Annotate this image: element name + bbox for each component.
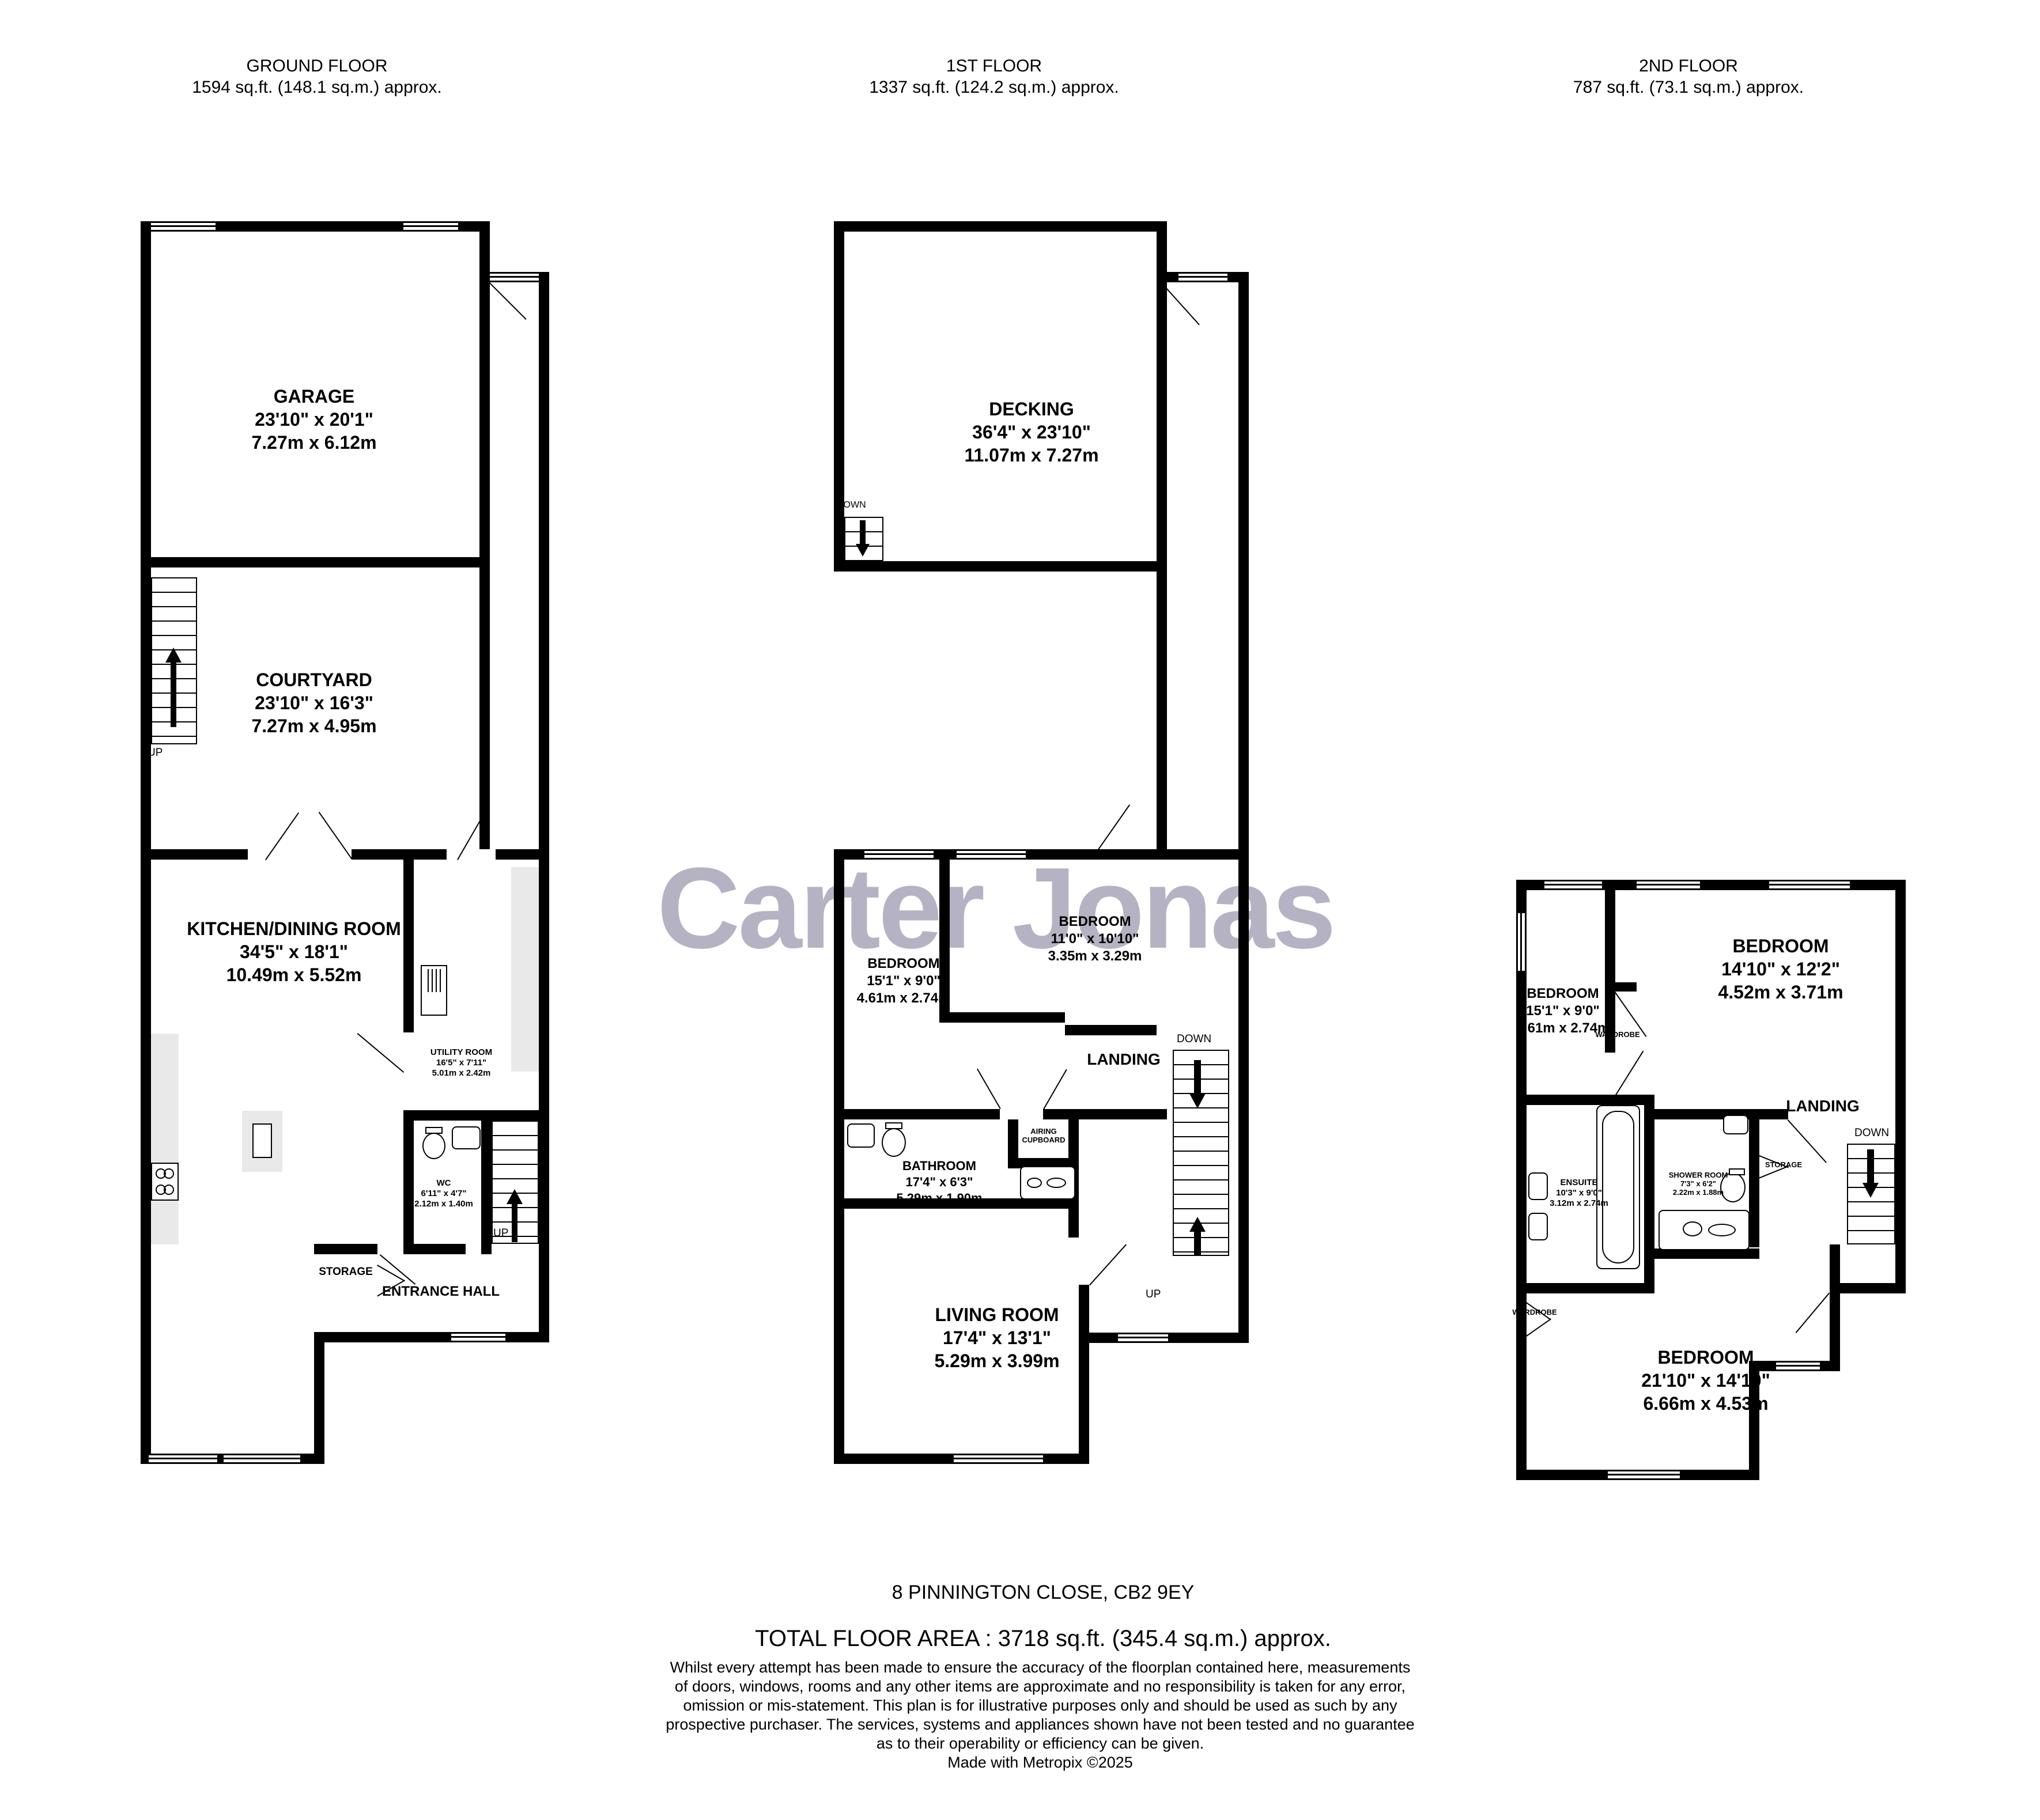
up-arrow-icon	[507, 1189, 523, 1204]
room-name: WARDROBE	[1503, 1308, 1566, 1316]
room-name: BEDROOM	[1494, 985, 1632, 1002]
wall	[403, 1110, 549, 1121]
wall	[1238, 272, 1249, 1343]
floor-title: 1ST FLOOR	[821, 55, 1167, 77]
floor-area: 1594 sq.ft. (148.1 sq.m.) approx.	[144, 77, 490, 98]
wall	[1840, 1283, 1906, 1293]
room-dims-imperial: 11'0" x 10'10"	[1014, 930, 1176, 948]
room-dims-imperial: 14'10" x 12'2"	[1683, 958, 1879, 981]
room-dims-imperial: 10'3" x 9'0"	[1530, 1188, 1628, 1198]
down-arrow-icon	[860, 520, 866, 546]
room-name: ENTRANCE HALL	[346, 1284, 536, 1300]
room-dims-metric: 7.27m x 4.95m	[199, 714, 429, 737]
total-floor-area: TOTAL FLOOR AREA : 3718 sq.ft. (345.4 sq…	[617, 1626, 1469, 1652]
room-label-bedroom: BEDROOM 14'10" x 12'2" 4.52m x 3.71m	[1683, 934, 1879, 1004]
room-label-bedroom: BEDROOM 21'10" x 14'10" 6.66m x 4.53m	[1608, 1346, 1804, 1415]
room-name: BEDROOM	[1608, 1346, 1804, 1369]
up-label: UP	[148, 747, 163, 759]
room-label-storage: STORAGE	[311, 1265, 380, 1278]
wall	[1065, 1025, 1157, 1035]
room-name: LIVING ROOM	[882, 1303, 1112, 1326]
toilet-icon	[425, 1127, 443, 1134]
room-dims-imperial: 17'4" x 13'1"	[882, 1326, 1112, 1349]
sink-icon	[1528, 1213, 1548, 1240]
window	[149, 1454, 217, 1464]
window	[1544, 880, 1602, 890]
wall	[1749, 1109, 1759, 1247]
floor-header-ground: GROUND FLOOR 1594 sq.ft. (148.1 sq.m.) a…	[144, 55, 490, 98]
burner-icon	[164, 1168, 174, 1179]
room-dims-imperial: 23'10" x 20'1"	[199, 408, 429, 431]
down-label: DOWN	[837, 500, 866, 510]
window	[1516, 913, 1527, 971]
room-label-bedroom: BEDROOM 15'1" x 9'0" 4.61m x 2.74m	[1494, 985, 1632, 1037]
room-dims-imperial: 7'3" x 6'2"	[1655, 1179, 1741, 1188]
room-dims-metric: 5.29m x 3.99m	[882, 1349, 1112, 1372]
up-arrow-icon	[165, 648, 182, 663]
window	[864, 849, 934, 860]
shower-icon	[1020, 1166, 1075, 1200]
wall	[1644, 1095, 1654, 1293]
room-dims-imperial: 6'11" x 4'7"	[403, 1189, 484, 1199]
toilet-icon	[882, 1128, 906, 1157]
room-name: COURTYARD	[199, 668, 429, 691]
wall	[314, 1244, 377, 1254]
stove-icon	[151, 1163, 179, 1201]
window	[957, 849, 1026, 860]
room-label-entrance-hall: ENTRANCE HALL	[346, 1284, 536, 1300]
room-label-decking: DECKING 36'4" x 23'10" 11.07m x 7.27m	[916, 398, 1147, 467]
wall	[834, 221, 844, 572]
room-dims-metric: 6.66m x 4.53m	[1608, 1392, 1804, 1415]
door-swing	[1166, 288, 1200, 326]
down-arrow-icon	[1863, 1183, 1879, 1198]
room-dims-imperial: 15'1" x 9'0"	[834, 973, 973, 990]
sink-icon	[847, 1123, 875, 1148]
fridge-coils	[425, 969, 443, 992]
room-label-wardrobe: WARDROBE	[1586, 1030, 1649, 1039]
room-label-courtyard: COURTYARD 23'10" x 16'3" 7.27m x 4.95m	[199, 668, 429, 737]
down-arrow-icon	[1867, 1149, 1874, 1185]
door-swing	[489, 282, 527, 320]
room-label-landing: LANDING	[1066, 1050, 1181, 1069]
room-dims-imperial: 21'10" x 14'10"	[1608, 1369, 1804, 1392]
room-label-wc: WC 6'11" x 4'7" 2.12m x 1.40m	[403, 1178, 484, 1209]
address: 8 PINNINGTON CLOSE, CB2 9EY	[674, 1581, 1412, 1604]
room-name: ENSUITE	[1530, 1178, 1628, 1188]
wall	[1043, 1109, 1167, 1119]
room-name: AIRING CUPBOARD	[1010, 1127, 1078, 1144]
room-name: BEDROOM	[1683, 934, 1879, 958]
door-swing	[1089, 1244, 1127, 1285]
burner-icon	[164, 1185, 174, 1195]
floor-area: 1337 sq.ft. (124.2 sq.m.) approx.	[821, 77, 1167, 98]
room-label-kitchen: KITCHEN/DINING ROOM 34'5" x 18'1" 10.49m…	[161, 917, 426, 986]
down-arrow-icon	[856, 544, 870, 557]
room-name: BATHROOM	[859, 1158, 1020, 1174]
window	[1769, 880, 1850, 890]
room-name: BEDROOM	[834, 955, 973, 973]
wall	[834, 849, 844, 1464]
door-swing	[357, 1033, 405, 1073]
room-dims-metric: 5.01m x 2.42m	[414, 1068, 509, 1079]
up-arrow-icon	[171, 663, 176, 727]
down-label: DOWN	[1177, 1033, 1211, 1046]
sink-icon	[452, 1126, 481, 1149]
room-label-storage: STORAGE	[1752, 1160, 1815, 1169]
floor-header-first: 1ST FLOOR 1337 sq.ft. (124.2 sq.m.) appr…	[821, 55, 1167, 98]
room-name: WC	[403, 1178, 484, 1189]
room-name: UTILITY ROOM	[414, 1047, 509, 1058]
room-dims-imperial: 15'1" x 9'0"	[1494, 1002, 1632, 1020]
room-label-utility: UTILITY ROOM 16'5" x 7'11" 5.01m x 2.42m	[414, 1047, 509, 1079]
drain-icon	[1047, 1178, 1066, 1188]
floor-title: GROUND FLOOR	[144, 55, 490, 77]
window	[490, 272, 539, 282]
wall	[834, 221, 1167, 232]
wall	[1516, 1095, 1654, 1105]
basin-icon	[1683, 1221, 1702, 1236]
floorplan-canvas: Carter Jonas GROUND FLOOR 1594 sq.ft. (1…	[0, 0, 2040, 1820]
room-name: LANDING	[1765, 1096, 1880, 1116]
room-name: LANDING	[1066, 1050, 1181, 1069]
door-swing	[1615, 1051, 1644, 1095]
wall	[1516, 1283, 1654, 1293]
disclaimer: Whilst every attempt has been made to en…	[666, 1658, 1415, 1753]
room-label-living-room: LIVING ROOM 17'4" x 13'1" 5.29m x 3.99m	[882, 1303, 1112, 1372]
shower-icon	[1723, 1115, 1748, 1134]
wall	[141, 557, 490, 567]
floor-area: 787 sq.ft. (73.1 sq.m.) approx.	[1516, 77, 1861, 98]
island-appliance-icon	[252, 1123, 272, 1158]
room-dims-imperial: 16'5" x 7'11"	[414, 1058, 509, 1068]
room-dims-imperial: 34'5" x 18'1"	[161, 940, 426, 963]
window	[1118, 1333, 1168, 1343]
room-dims-imperial: 17'4" x 6'3"	[859, 1174, 1020, 1190]
room-label-shower-room: SHOWER ROOM 7'3" x 6'2" 2.22m x 1.88m	[1655, 1171, 1741, 1197]
down-label: DOWN	[1854, 1127, 1889, 1140]
wall	[314, 1332, 324, 1464]
toilet-icon	[422, 1133, 445, 1159]
up-arrow-icon	[512, 1204, 517, 1242]
window	[451, 1332, 505, 1342]
window	[1608, 1470, 1680, 1480]
window	[151, 221, 216, 232]
room-dims-metric: 3.35m x 3.29m	[1014, 948, 1176, 965]
door-swing	[1796, 1293, 1830, 1333]
room-dims-metric: 4.61m x 2.74m	[834, 990, 973, 1007]
window	[403, 221, 458, 232]
room-name: BEDROOM	[1014, 913, 1176, 930]
down-arrow-icon	[1194, 1060, 1201, 1096]
room-dims-metric: 4.52m x 3.71m	[1683, 981, 1879, 1004]
wall	[844, 1109, 1000, 1119]
wall	[1830, 1244, 1840, 1370]
up-label: UP	[493, 1227, 508, 1240]
wall	[950, 1012, 1065, 1023]
room-label-bathroom: BATHROOM 17'4" x 6'3" 5.29m x 1.90m	[859, 1158, 1020, 1206]
floor-title: 2ND FLOOR	[1516, 55, 1861, 77]
up-arrow-icon	[1194, 1231, 1201, 1256]
room-label-wardrobe: WARDROBE	[1503, 1308, 1566, 1316]
down-arrow-icon	[1189, 1093, 1206, 1108]
room-dims-metric: 5.29m x 1.90m	[859, 1190, 1020, 1206]
room-label-ensuite: ENSUITE 10'3" x 9'0" 3.12m x 2.74m	[1530, 1178, 1628, 1209]
room-dims-imperial: 36'4" x 23'10"	[916, 421, 1147, 444]
room-label-bedroom: BEDROOM 15'1" x 9'0" 4.61m x 2.74m	[834, 955, 973, 1007]
wall	[834, 561, 1167, 572]
room-name: STORAGE	[1752, 1160, 1815, 1169]
room-name: KITCHEN/DINING ROOM	[161, 917, 426, 940]
wall	[314, 1332, 549, 1342]
wall	[1157, 221, 1167, 860]
window	[1637, 880, 1700, 890]
room-label-garage: GARAGE 23'10" x 20'1" 7.27m x 6.12m	[199, 385, 429, 454]
room-dims-metric: 2.22m x 1.88m	[1655, 1188, 1741, 1197]
room-dims-imperial: 23'10" x 16'3"	[199, 691, 429, 714]
room-dims-metric: 2.12m x 1.40m	[403, 1199, 484, 1209]
toilet-icon	[885, 1122, 902, 1129]
wall	[414, 1244, 466, 1254]
window	[954, 1454, 1043, 1464]
up-label: UP	[1146, 1288, 1161, 1301]
room-name: DECKING	[916, 398, 1147, 421]
room-dims-metric: 7.27m x 6.12m	[199, 431, 429, 454]
basin-icon	[1708, 1224, 1736, 1236]
wall	[141, 221, 151, 1464]
wall	[539, 272, 549, 1342]
wall	[479, 221, 490, 860]
drain-icon	[1027, 1178, 1042, 1188]
up-arrow-icon	[1189, 1217, 1206, 1232]
door-opening	[248, 849, 352, 860]
door-swing	[1788, 1119, 1827, 1163]
room-dims-metric: 10.49m x 5.52m	[161, 963, 426, 986]
door-opening	[447, 849, 496, 860]
floor-header-second: 2ND FLOOR 787 sq.ft. (73.1 sq.m.) approx…	[1516, 55, 1861, 98]
room-dims-metric: 3.12m x 2.74m	[1530, 1198, 1628, 1209]
counter	[151, 1034, 179, 1244]
room-name: STORAGE	[311, 1265, 380, 1278]
window	[224, 1454, 300, 1464]
window	[1178, 272, 1227, 282]
room-label-airing-cupboard: AIRING CUPBOARD	[1010, 1127, 1078, 1144]
room-label-landing: LANDING	[1765, 1096, 1880, 1116]
door-swing	[977, 1069, 1001, 1109]
room-label-bedroom: BEDROOM 11'0" x 10'10" 3.35m x 3.29m	[1014, 913, 1176, 965]
utility-counter	[511, 867, 539, 1072]
room-name: WARDROBE	[1586, 1030, 1649, 1039]
bifold-door	[1526, 1318, 1551, 1336]
vanity-sink-icon	[1659, 1210, 1750, 1250]
room-name: SHOWER ROOM	[1655, 1171, 1741, 1179]
watermark: Carter Jonas	[657, 842, 1334, 975]
room-name: GARAGE	[199, 385, 429, 408]
metropix-credit: Made with Metropix ©2025	[666, 1754, 1415, 1772]
wall	[1895, 880, 1906, 1293]
door-swing	[1043, 1069, 1067, 1110]
room-dims-metric: 11.07m x 7.27m	[916, 444, 1147, 467]
